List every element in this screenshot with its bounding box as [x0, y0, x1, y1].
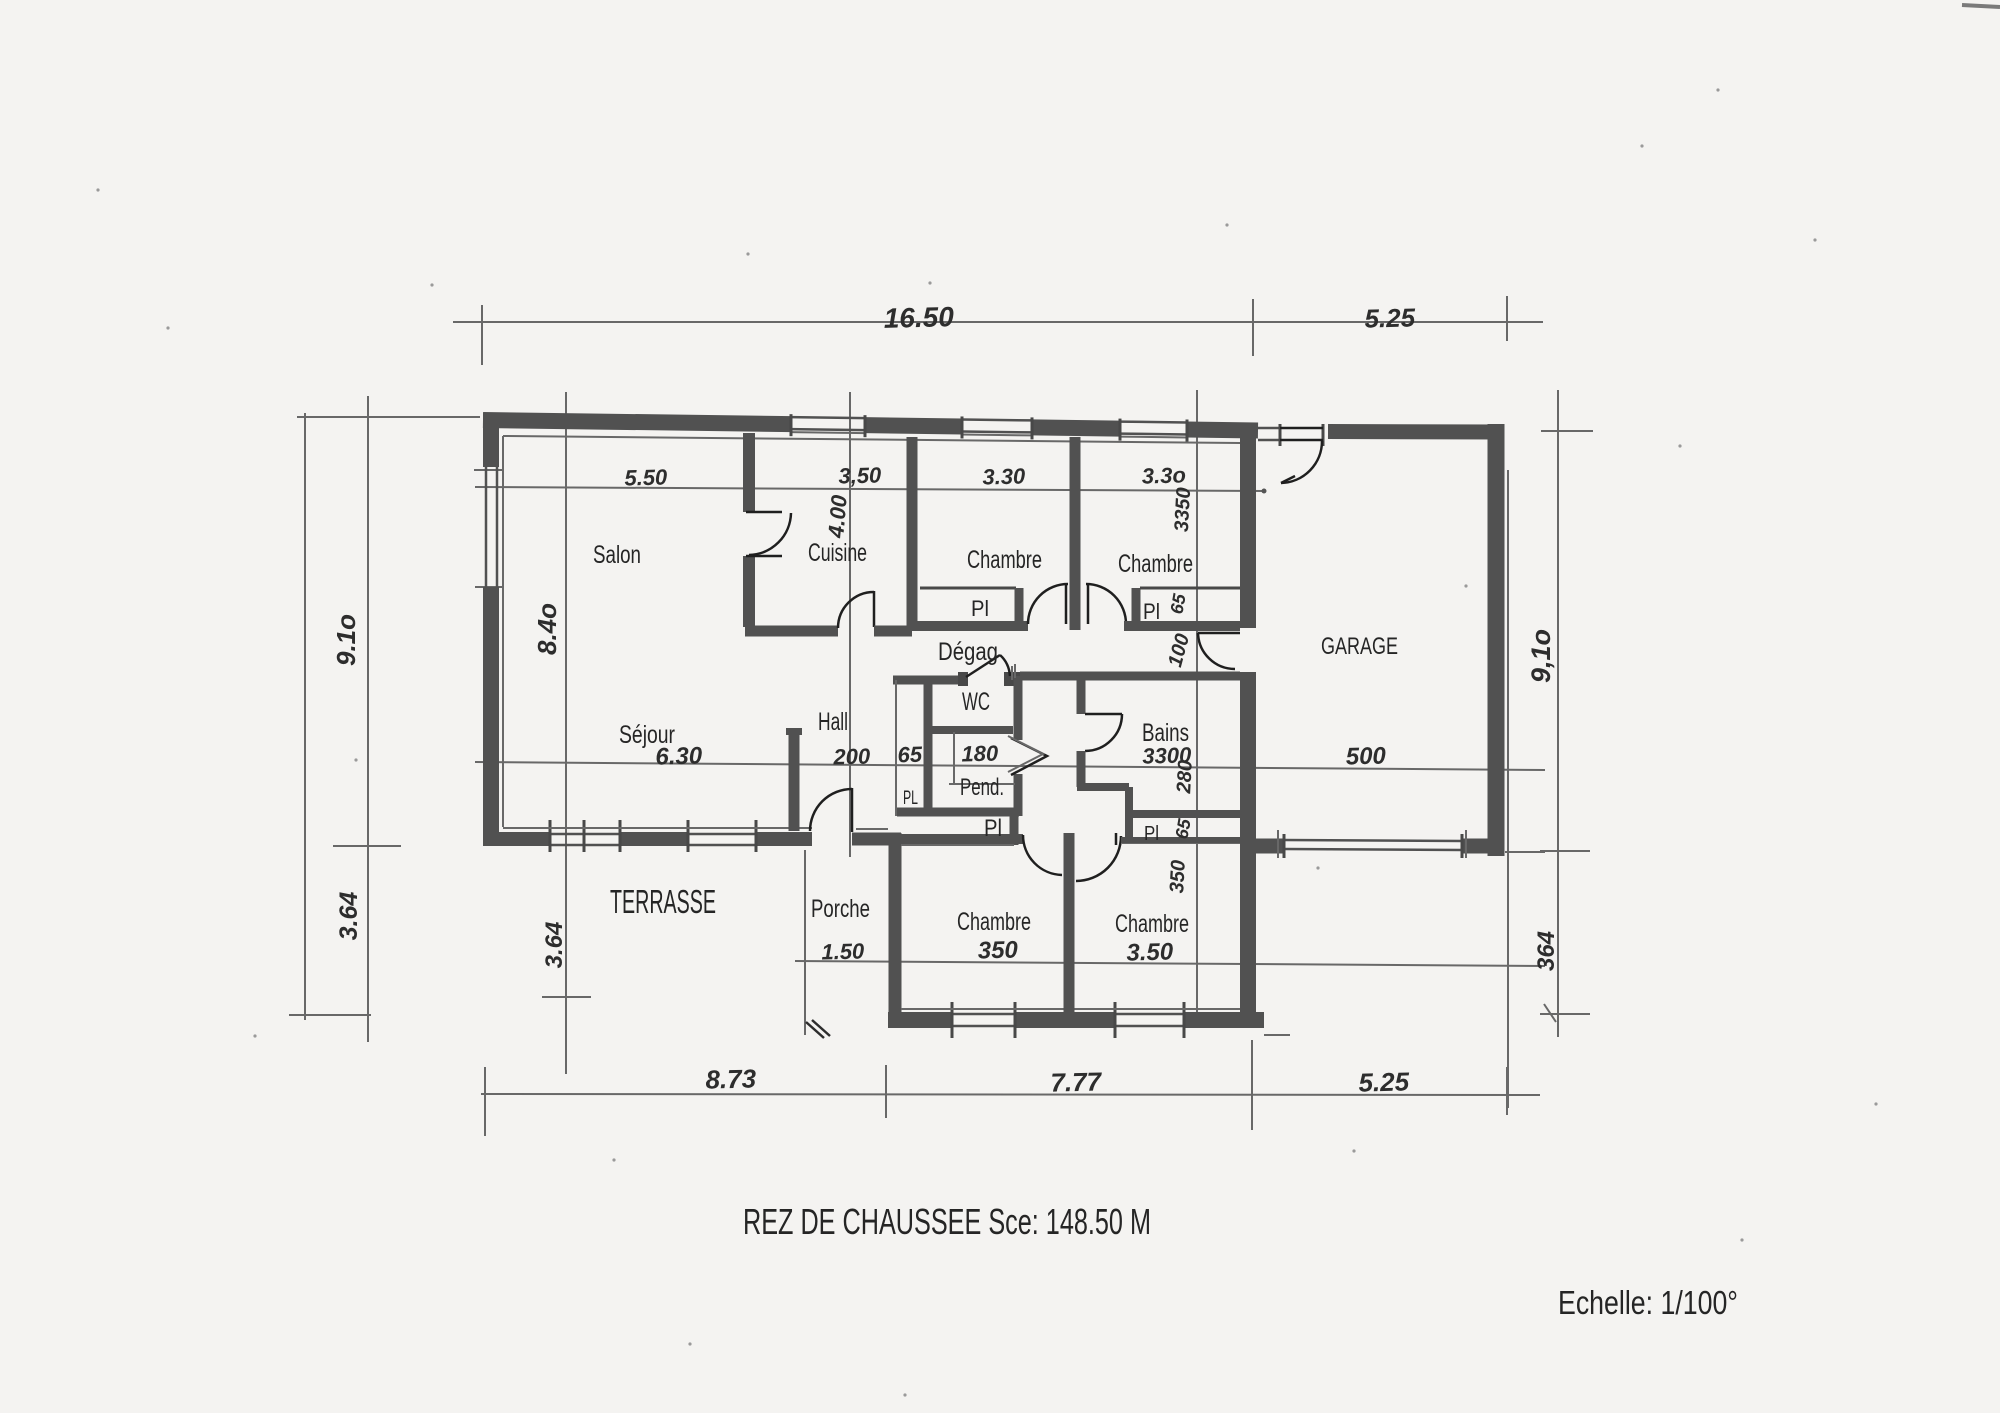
- svg-text:8.4o: 8.4o: [532, 603, 562, 655]
- svg-text:Pl: Pl: [1143, 599, 1160, 624]
- svg-text:3300: 3300: [1142, 742, 1192, 768]
- svg-text:180: 180: [961, 741, 999, 767]
- svg-text:Pl: Pl: [1144, 823, 1159, 845]
- svg-text:8.73: 8.73: [705, 1063, 757, 1094]
- svg-text:Chambre: Chambre: [1115, 910, 1189, 938]
- svg-text:Porche: Porche: [811, 895, 870, 923]
- svg-text:65: 65: [897, 742, 923, 768]
- svg-text:Salon: Salon: [593, 541, 641, 569]
- svg-text:3.3o: 3.3o: [1141, 462, 1186, 488]
- svg-text:Chambre: Chambre: [967, 546, 1042, 574]
- svg-text:364: 364: [1533, 931, 1560, 971]
- svg-text:Pl: Pl: [984, 815, 1002, 842]
- svg-text:3,50: 3,50: [838, 462, 882, 488]
- svg-text:9.1o: 9.1o: [331, 614, 361, 666]
- svg-text:3.64: 3.64: [335, 892, 363, 941]
- svg-text:3.30: 3.30: [982, 463, 1026, 489]
- svg-text:Echelle: 1/100°: Echelle: 1/100°: [1558, 1284, 1738, 1321]
- svg-text:4.00: 4.00: [823, 493, 852, 540]
- svg-text:WC: WC: [962, 688, 990, 716]
- svg-text:16.50: 16.50: [883, 301, 954, 334]
- svg-text:REZ DE CHAUSSEE Sce: 148.50 M: REZ DE CHAUSSEE Sce: 148.50 M: [743, 1201, 1151, 1242]
- svg-text:Chambre: Chambre: [957, 908, 1031, 936]
- svg-text:GARAGE: GARAGE: [1321, 633, 1398, 660]
- svg-text:Dégag: Dégag: [938, 638, 998, 666]
- svg-text:200: 200: [832, 744, 871, 770]
- svg-text:3.50: 3.50: [1126, 938, 1174, 966]
- svg-text:1.50: 1.50: [821, 938, 865, 964]
- svg-text:5.25: 5.25: [1358, 1066, 1410, 1097]
- svg-text:350: 350: [1166, 859, 1190, 893]
- svg-text:7.77: 7.77: [1050, 1066, 1103, 1097]
- svg-text:5.50: 5.50: [624, 464, 668, 490]
- svg-text:5.25: 5.25: [1364, 302, 1416, 333]
- svg-text:9,1o: 9,1o: [1526, 629, 1556, 683]
- svg-text:Pl: Pl: [971, 596, 989, 621]
- svg-text:PL: PL: [903, 788, 918, 809]
- svg-text:500: 500: [1345, 742, 1386, 770]
- svg-text:Hall: Hall: [818, 708, 848, 736]
- svg-text:6.30: 6.30: [655, 742, 703, 770]
- svg-text:3.64: 3.64: [541, 922, 568, 969]
- svg-text:350: 350: [977, 936, 1018, 964]
- svg-text:3350: 3350: [1171, 487, 1195, 533]
- svg-text:Cuisine: Cuisine: [808, 539, 867, 567]
- svg-text:Pend.: Pend.: [960, 774, 1004, 801]
- svg-text:TERRASSE: TERRASSE: [610, 883, 716, 920]
- svg-text:Chambre: Chambre: [1118, 550, 1193, 578]
